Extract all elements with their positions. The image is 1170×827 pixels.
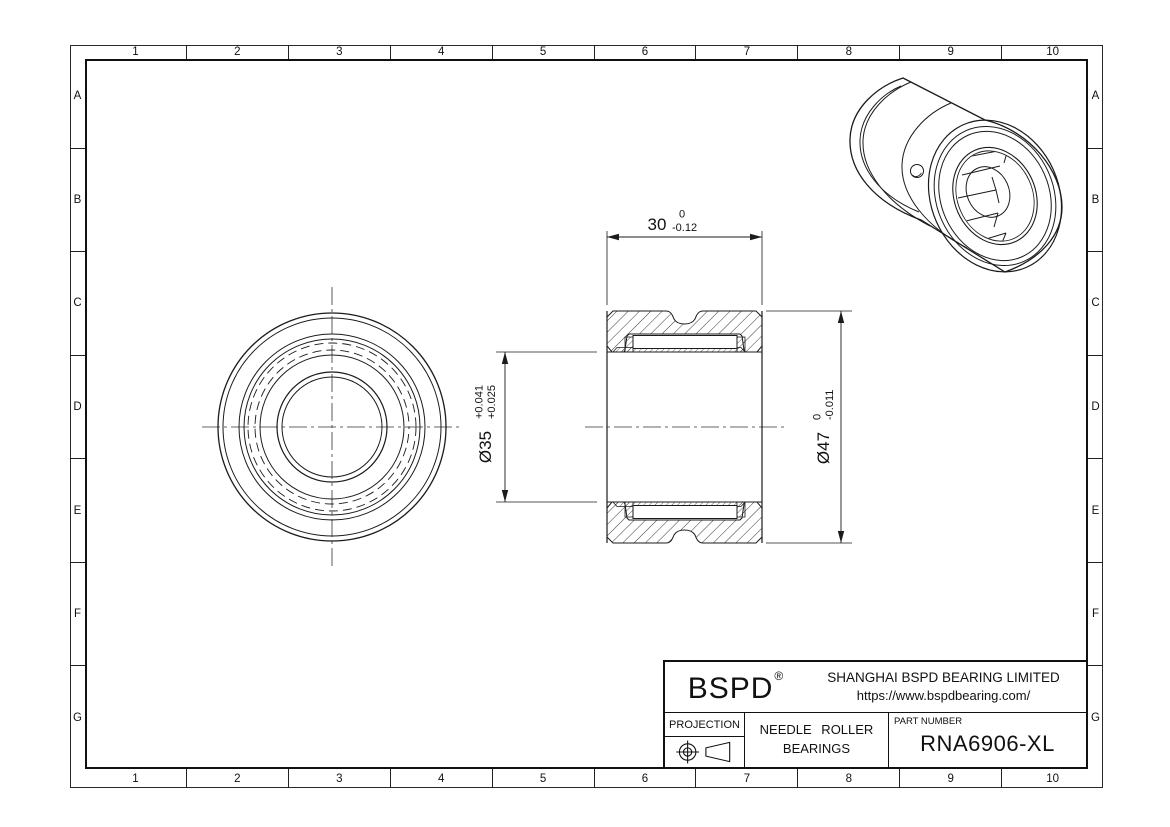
- iso-view: [850, 78, 1085, 293]
- title-block-detail-row: PROJECTION NEEDLE ROLLER BEAR: [665, 713, 1086, 767]
- dim-width-value: 30: [648, 215, 667, 234]
- dim-width-tol-lower: -0.12: [672, 222, 697, 234]
- dim-outer-tol-upper: 0: [812, 414, 824, 420]
- dim-bore-value: Ø35: [476, 431, 495, 463]
- projection-label: PROJECTION: [665, 713, 744, 737]
- company-name: SHANGHAI BSPD BEARING LIMITED: [807, 669, 1080, 687]
- drawing-sheet: 12345678910 12345678910 ABCDEFG ABCDEFG: [0, 0, 1170, 827]
- part-number-cell: PART NUMBER RNA6906-XL: [889, 713, 1086, 767]
- dim-bore-tol-upper: +0.041: [474, 385, 486, 419]
- title-block: BSPD® SHANGHAI BSPD BEARING LIMITED http…: [663, 660, 1088, 769]
- first-angle-projection-icon: [665, 737, 744, 767]
- dim-outer-tol-lower: -0.011: [824, 390, 836, 420]
- company-info: SHANGHAI BSPD BEARING LIMITED https://ww…: [807, 669, 1086, 705]
- dimension-width: 30 0 -0.12: [607, 209, 762, 306]
- brand-text: BSPD: [688, 672, 774, 705]
- product-line1: NEEDLE ROLLER: [760, 721, 874, 740]
- dimension-outer: Ø47 0 -0.011: [766, 311, 852, 543]
- brand-logo: BSPD®: [665, 669, 807, 706]
- title-block-header-row: BSPD® SHANGHAI BSPD BEARING LIMITED http…: [665, 662, 1086, 713]
- company-website: https://www.bspdbearing.com/: [807, 687, 1080, 705]
- projection-cell: PROJECTION: [665, 713, 745, 767]
- product-line2: BEARINGS: [783, 740, 850, 759]
- dim-bore-tol-lower: +0.025: [486, 385, 498, 419]
- product-type-cell: NEEDLE ROLLER BEARINGS: [745, 713, 889, 767]
- dim-outer-value: Ø47: [814, 432, 833, 464]
- dimension-bore: Ø35 +0.041 +0.025: [474, 352, 598, 502]
- front-view-centerlines: [202, 287, 462, 567]
- front-view: [202, 287, 462, 567]
- part-number-value: RNA6906-XL: [889, 731, 1086, 757]
- dim-width-tol-upper: 0: [679, 209, 685, 221]
- part-number-label: PART NUMBER: [894, 716, 962, 727]
- section-view: [585, 311, 788, 543]
- registered-mark: ®: [774, 669, 784, 683]
